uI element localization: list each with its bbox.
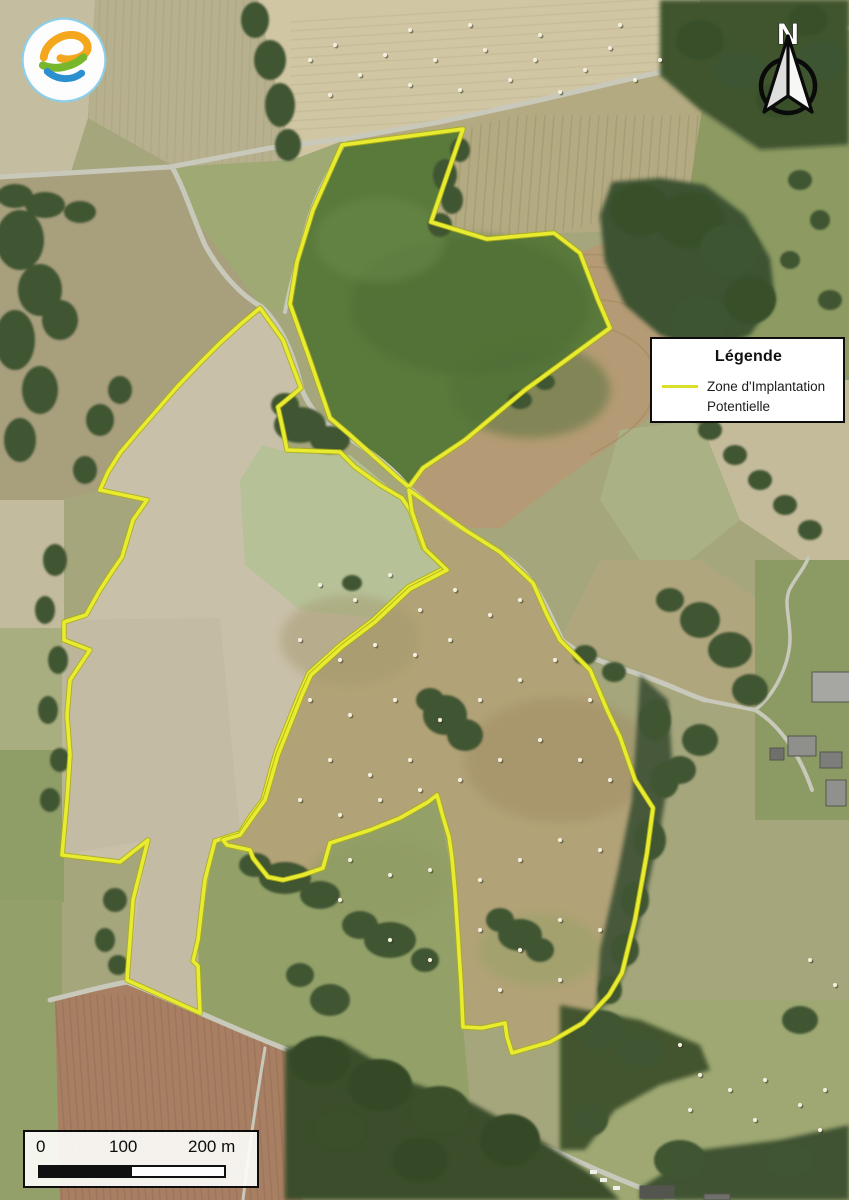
scale-tick-200: 200 m — [188, 1137, 235, 1157]
scale-segment-black — [40, 1167, 132, 1176]
scale-bar: 0 100 200 m — [23, 1130, 259, 1188]
north-arrow-right-half — [788, 36, 812, 112]
scale-tick-0: 0 — [36, 1137, 45, 1157]
legend-box: Légende Zone d'Implantation Potentielle — [650, 337, 845, 423]
legend-item-label: Zone d'Implantation Potentielle — [707, 377, 835, 416]
zip-line-swatch — [662, 385, 698, 388]
company-logo — [20, 16, 108, 104]
scale-bar-track — [38, 1165, 226, 1178]
north-arrow: N — [747, 10, 829, 122]
scale-tick-100: 100 — [109, 1137, 137, 1157]
map-canvas: N Légende Zone d'Implantation Potentiell… — [0, 0, 849, 1200]
scale-segment-white — [132, 1167, 224, 1176]
aerial-basemap — [0, 0, 849, 1200]
legend-title: Légende — [662, 348, 835, 366]
legend-item: Zone d'Implantation Potentielle — [662, 377, 835, 416]
